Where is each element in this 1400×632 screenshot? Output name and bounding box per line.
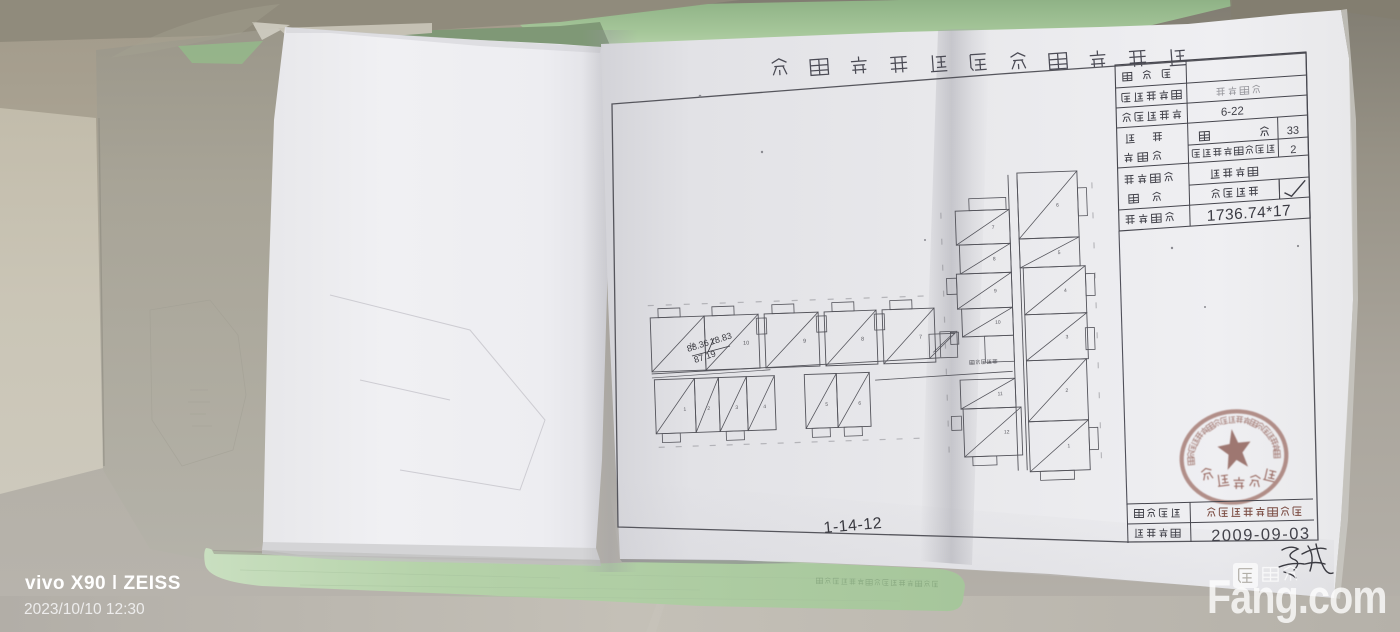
svg-text:3: 3 xyxy=(735,405,738,411)
svg-text:8: 8 xyxy=(861,337,864,343)
svg-text:6-22: 6-22 xyxy=(1221,105,1244,119)
svg-text:12: 12 xyxy=(1004,429,1010,435)
svg-text:2009-09-03: 2009-09-03 xyxy=(1211,525,1311,546)
svg-text:2: 2 xyxy=(1065,388,1068,394)
svg-text:2: 2 xyxy=(1290,144,1296,156)
svg-text:10: 10 xyxy=(995,320,1001,326)
svg-text:2: 2 xyxy=(707,406,710,412)
svg-text:1: 1 xyxy=(683,407,686,413)
svg-text:33: 33 xyxy=(1287,125,1300,138)
svg-text:8: 8 xyxy=(993,256,996,262)
svg-text:6: 6 xyxy=(1056,203,1059,209)
svg-text:5: 5 xyxy=(825,402,828,408)
svg-text:10: 10 xyxy=(743,341,749,347)
svg-text:4: 4 xyxy=(763,404,766,410)
svg-text:6: 6 xyxy=(858,401,861,407)
svg-text:9: 9 xyxy=(803,339,806,345)
svg-text:7: 7 xyxy=(919,334,922,340)
svg-text:2023/10/10 12:30: 2023/10/10 12:30 xyxy=(24,601,145,618)
svg-text:11: 11 xyxy=(997,391,1003,397)
svg-text:7: 7 xyxy=(992,225,995,231)
svg-text:5: 5 xyxy=(1058,250,1061,256)
svg-text:9: 9 xyxy=(994,288,997,294)
svg-text:3: 3 xyxy=(1066,334,1069,340)
svg-text:vivo X90 ǀ ZEISS: vivo X90 ǀ ZEISS xyxy=(25,573,181,594)
svg-text:4: 4 xyxy=(1064,288,1067,294)
svg-text:1: 1 xyxy=(1067,443,1070,449)
